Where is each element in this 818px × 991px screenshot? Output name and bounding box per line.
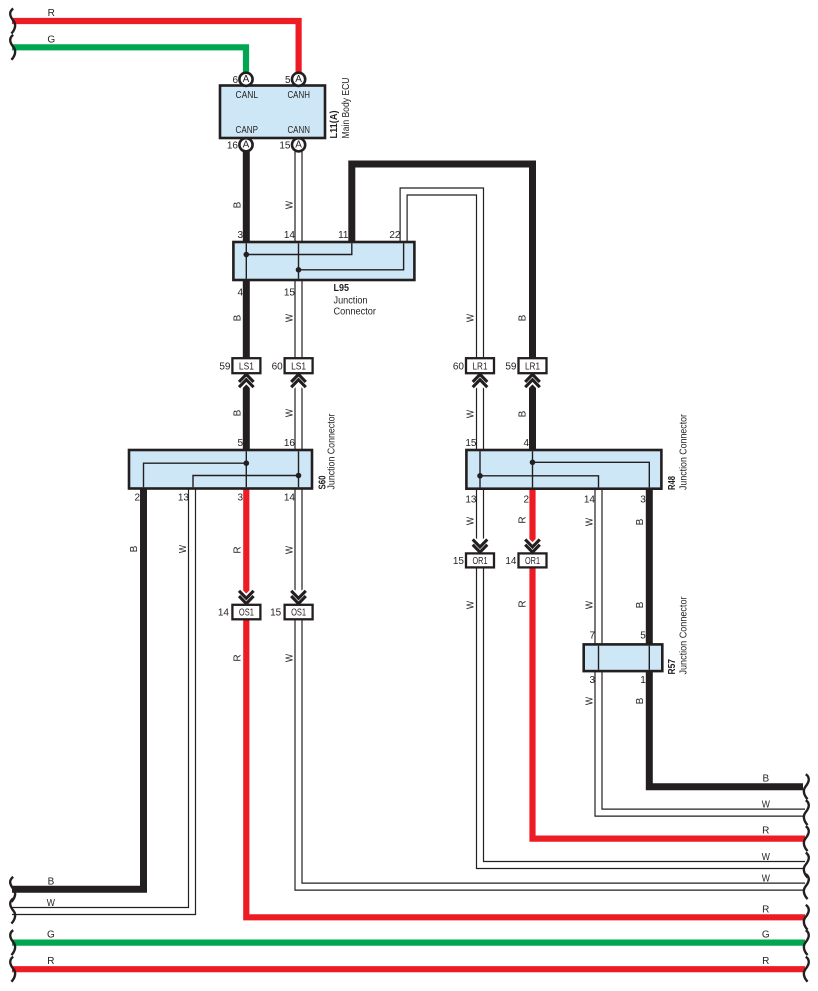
- svg-text:LS1: LS1: [239, 361, 254, 372]
- svg-text:14: 14: [584, 495, 596, 506]
- svg-text:Junction Connector: Junction Connector: [679, 413, 690, 490]
- svg-text:15: 15: [279, 140, 291, 151]
- svg-text:2: 2: [523, 495, 529, 506]
- svg-text:A: A: [243, 74, 250, 85]
- svg-text:L95: L95: [334, 283, 350, 294]
- svg-text:B: B: [233, 314, 244, 321]
- svg-text:W: W: [466, 600, 477, 609]
- svg-text:3: 3: [640, 495, 646, 506]
- svg-text:OR1: OR1: [525, 556, 540, 567]
- svg-text:LR1: LR1: [525, 361, 540, 372]
- svg-text:W: W: [585, 696, 596, 705]
- svg-text:LR1: LR1: [473, 361, 488, 372]
- svg-text:R: R: [48, 8, 55, 19]
- svg-text:2: 2: [134, 492, 140, 503]
- svg-text:G: G: [47, 930, 55, 941]
- svg-text:11: 11: [338, 230, 349, 241]
- svg-text:59: 59: [219, 361, 231, 372]
- svg-text:Connector: Connector: [334, 307, 377, 318]
- svg-text:3: 3: [237, 492, 243, 503]
- svg-text:R: R: [762, 904, 769, 915]
- svg-text:OR1: OR1: [473, 556, 488, 567]
- svg-text:B: B: [635, 518, 646, 525]
- svg-text:W: W: [285, 408, 296, 417]
- svg-text:7: 7: [589, 631, 595, 642]
- svg-text:B: B: [233, 409, 244, 416]
- svg-text:6: 6: [232, 75, 238, 86]
- svg-text:R48: R48: [667, 476, 678, 490]
- svg-text:60: 60: [453, 361, 465, 372]
- svg-text:B: B: [762, 774, 769, 785]
- svg-text:W: W: [178, 544, 189, 553]
- svg-text:R: R: [762, 956, 769, 967]
- svg-text:W: W: [762, 800, 771, 811]
- svg-text:R: R: [518, 600, 529, 607]
- svg-text:15: 15: [453, 556, 465, 567]
- svg-text:B: B: [635, 697, 646, 704]
- svg-text:W: W: [285, 653, 296, 662]
- svg-text:15: 15: [284, 288, 296, 299]
- svg-text:W: W: [466, 409, 477, 418]
- svg-text:13: 13: [178, 492, 190, 503]
- svg-text:W: W: [285, 200, 296, 209]
- svg-text:A: A: [243, 140, 250, 151]
- svg-text:CANL: CANL: [236, 90, 259, 101]
- svg-text:B: B: [518, 314, 529, 321]
- svg-text:5: 5: [237, 438, 243, 449]
- svg-text:W: W: [47, 898, 56, 909]
- svg-text:Junction Connector: Junction Connector: [679, 596, 690, 675]
- svg-text:60: 60: [272, 361, 284, 372]
- svg-text:R: R: [233, 546, 244, 553]
- svg-text:59: 59: [505, 361, 517, 372]
- svg-text:W: W: [585, 600, 596, 609]
- svg-text:5: 5: [640, 631, 646, 642]
- svg-text:4: 4: [523, 438, 529, 449]
- svg-text:CANH: CANH: [287, 90, 310, 101]
- svg-text:LS1: LS1: [291, 361, 306, 372]
- svg-text:Main Body ECU: Main Body ECU: [341, 78, 352, 139]
- svg-text:16: 16: [284, 438, 296, 449]
- svg-text:B: B: [635, 601, 646, 608]
- svg-text:14: 14: [505, 556, 517, 567]
- svg-text:13: 13: [465, 495, 477, 506]
- svg-text:W: W: [285, 545, 296, 554]
- svg-text:Junction: Junction: [334, 296, 368, 307]
- svg-text:CANP: CANP: [236, 125, 259, 136]
- svg-text:3: 3: [589, 675, 595, 686]
- svg-text:R: R: [762, 826, 769, 837]
- svg-text:A: A: [295, 74, 302, 85]
- svg-text:R: R: [47, 956, 54, 967]
- svg-text:5: 5: [285, 75, 291, 86]
- svg-text:W: W: [466, 313, 477, 322]
- svg-text:15: 15: [270, 608, 282, 619]
- svg-text:16: 16: [227, 140, 239, 151]
- svg-text:R57: R57: [667, 659, 678, 675]
- svg-text:L11(A): L11(A): [329, 111, 340, 139]
- svg-text:4: 4: [237, 288, 243, 299]
- svg-text:R: R: [518, 516, 529, 523]
- svg-text:G: G: [762, 930, 770, 941]
- svg-text:15: 15: [465, 438, 477, 449]
- svg-text:22: 22: [389, 230, 401, 241]
- svg-text:W: W: [466, 516, 477, 525]
- svg-text:W: W: [762, 852, 771, 863]
- svg-text:B: B: [233, 201, 244, 208]
- svg-text:W: W: [585, 517, 596, 526]
- svg-text:R: R: [233, 654, 244, 661]
- svg-text:1: 1: [640, 675, 646, 686]
- svg-text:A: A: [295, 140, 302, 151]
- svg-text:OS1: OS1: [291, 608, 306, 619]
- svg-text:Junction Connector: Junction Connector: [327, 413, 338, 490]
- svg-text:G: G: [47, 34, 55, 45]
- svg-text:CANN: CANN: [287, 125, 310, 136]
- svg-text:B: B: [518, 410, 529, 417]
- svg-text:14: 14: [284, 492, 296, 503]
- svg-text:W: W: [285, 313, 296, 322]
- svg-text:B: B: [48, 876, 55, 887]
- svg-text:W: W: [762, 874, 771, 885]
- svg-text:3: 3: [237, 230, 243, 241]
- svg-text:B: B: [129, 545, 140, 552]
- svg-text:OS1: OS1: [239, 608, 254, 619]
- svg-text:14: 14: [218, 608, 230, 619]
- svg-text:14: 14: [284, 230, 296, 241]
